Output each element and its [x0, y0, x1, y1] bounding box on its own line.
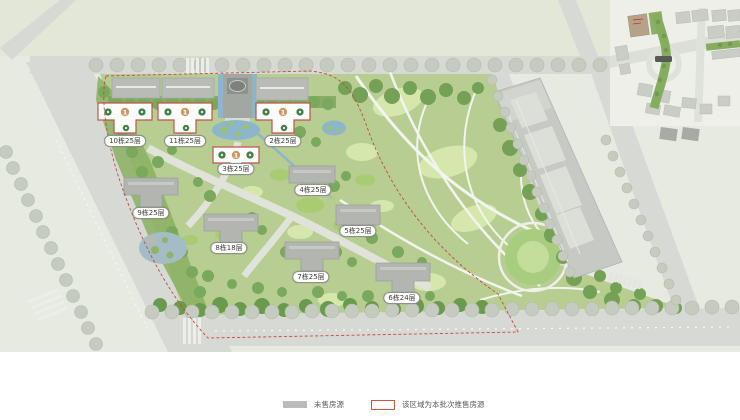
tower-4 — [289, 166, 335, 183]
site-plan-screenshot: 1 1 1 1 — [0, 0, 740, 420]
unit-number-2: 1 — [281, 109, 286, 117]
map-canvas: 1 1 1 1 — [0, 0, 740, 352]
master-plan-map: 1 1 1 1 — [0, 0, 740, 352]
building-label-9: 9栋25层 — [132, 207, 169, 219]
location-inset-map — [610, 0, 740, 126]
east-pond — [322, 121, 346, 136]
building-label-2: 2栋25层 — [264, 135, 301, 147]
building-label-6: 6栋24层 — [383, 292, 420, 304]
building-label-11: 11栋25层 — [164, 135, 206, 147]
circular-lawn-center — [517, 241, 549, 273]
building-label-8: 8栋18层 — [210, 242, 247, 254]
unit-number-11: 1 — [183, 109, 188, 117]
building-label-7: 7栋25层 — [292, 271, 329, 283]
building-label-4: 4栋25层 — [294, 184, 331, 196]
unsold-swatch — [283, 401, 307, 408]
batch-area-swatch — [371, 400, 395, 410]
water-garden — [139, 232, 187, 264]
entrance-pond — [212, 120, 260, 140]
inset-subject-parcel — [628, 14, 650, 37]
unsold-label: 未售房源 — [314, 399, 344, 410]
unit-number-3: 1 — [234, 152, 239, 160]
batch-area-label: 该区域为本批次推售房源 — [402, 399, 485, 410]
building-label-3: 3栋25层 — [217, 163, 254, 175]
unit-number-10: 1 — [123, 109, 128, 117]
legend: 未售房源 该区域为本批次推售房源 — [283, 399, 485, 410]
building-label-10: 10栋25层 — [104, 135, 146, 147]
tower-5 — [336, 205, 380, 225]
inset-area-label — [655, 56, 672, 62]
building-label-5: 5栋25层 — [339, 225, 376, 237]
